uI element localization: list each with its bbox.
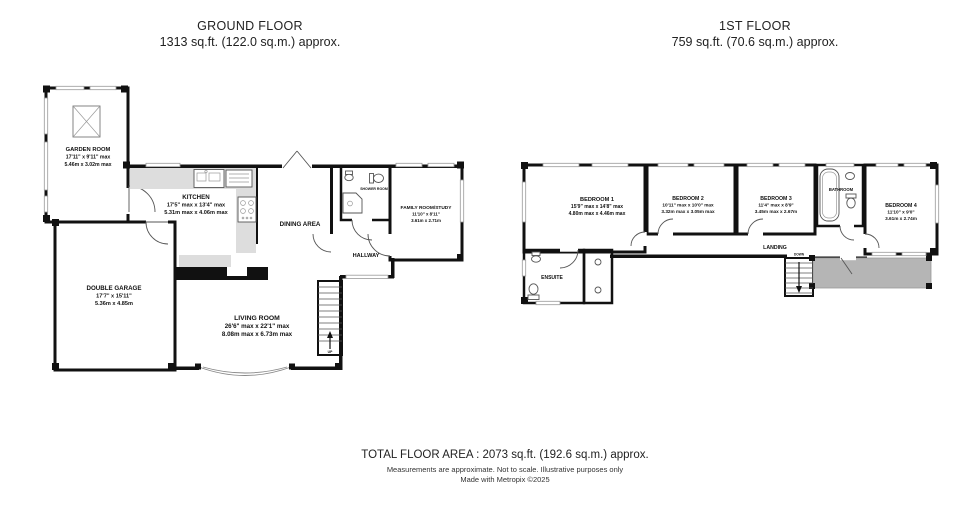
kitchen-label: KITCHEN	[182, 194, 210, 201]
first-floor-title: 1ST FLOOR 759 sq.ft. (70.6 sq.m.) approx…	[605, 18, 905, 51]
garden-room-label: GARDEN ROOM	[66, 147, 111, 153]
svg-text:11'4" max x 8'9": 11'4" max x 8'9"	[758, 203, 793, 208]
landing-label: LANDING	[763, 245, 787, 251]
stairs-down-label: DOWN	[794, 253, 805, 257]
toilet-icon	[370, 174, 374, 184]
footer: TOTAL FLOOR AREA : 2073 sq.ft. (192.6 sq…	[295, 449, 715, 485]
svg-text:8.08m max x 6.73m max: 8.08m max x 6.73m max	[222, 331, 293, 338]
shower-head-icon	[595, 259, 601, 265]
svg-text:3.61m x 2.74m: 3.61m x 2.74m	[885, 216, 917, 221]
svg-text:17'7" x 15'11": 17'7" x 15'11"	[96, 294, 132, 300]
svg-text:17'5" max x 13'4" max: 17'5" max x 13'4" max	[167, 203, 226, 209]
svg-text:3.45m max x 2.67m: 3.45m max x 2.67m	[755, 209, 797, 214]
stairs-down	[785, 262, 813, 293]
total-floor-area: TOTAL FLOOR AREA : 2073 sq.ft. (192.6 sq…	[295, 449, 715, 461]
svg-text:4.80m max x 4.46m max: 4.80m max x 4.46m max	[569, 211, 626, 217]
bedroom3-label: BEDROOM 3	[760, 196, 792, 202]
hob-icon	[238, 197, 256, 222]
svg-text:5.31m max x 4.06m max: 5.31m max x 4.06m max	[164, 210, 228, 216]
ground-floor-name: GROUND FLOOR	[100, 18, 400, 34]
disclaimer-text: Measurements are approximate. Not to sca…	[295, 465, 715, 475]
svg-text:15'9" max x 14'8" max: 15'9" max x 14'8" max	[571, 204, 623, 210]
stairs-up-label: UP	[328, 350, 333, 354]
svg-text:3.61m x 2.71m: 3.61m x 2.71m	[411, 218, 441, 223]
sink-icon	[532, 252, 540, 256]
sink-icon	[846, 173, 855, 180]
credit-text: Made with Metropix ©2025	[295, 475, 715, 485]
toilet-icon	[528, 295, 539, 300]
family-room-label: FAMILY ROOM/STUDY	[401, 205, 453, 211]
bedroom1-label: BEDROOM 1	[580, 197, 614, 203]
ground-floor-area: 1313 sq.ft. (122.0 sq.m.) approx.	[100, 34, 400, 50]
kitchen-sink-icon	[194, 170, 252, 188]
ground-floor-title: GROUND FLOOR 1313 sq.ft. (122.0 sq.m.) a…	[100, 18, 400, 51]
toilet-icon	[846, 194, 856, 198]
shower-room-label: SHOWER ROOM	[360, 187, 388, 191]
svg-text:10'11" max x 10'0" max: 10'11" max x 10'0" max	[662, 203, 714, 208]
ground-floor-plan: GARDEN ROOM 17'11" x 9'11" max 5.46m x 3…	[40, 80, 470, 395]
skylight-icon	[73, 106, 100, 137]
hallway-label: HALLWAY	[353, 253, 380, 259]
double-garage-label: DOUBLE GARAGE	[86, 285, 141, 292]
ensuite-label: ENSUITE	[541, 275, 563, 281]
first-floor-plan: BEDROOM 1 15'9" max x 14'8" max 4.80m ma…	[515, 155, 940, 310]
dining-area-label: DINING AREA	[280, 221, 321, 228]
roof-area	[809, 255, 932, 289]
bathroom-label: BATHROOM	[829, 187, 854, 192]
svg-text:3.32m max x 3.05m max: 3.32m max x 3.05m max	[661, 209, 715, 214]
svg-text:11'10" x 9'0": 11'10" x 9'0"	[887, 210, 914, 215]
bedroom4-label: BEDROOM 4	[885, 203, 917, 209]
bedroom2-label: BEDROOM 2	[672, 196, 704, 202]
first-floor-area: 759 sq.ft. (70.6 sq.m.) approx.	[605, 34, 905, 50]
first-floor-name: 1ST FLOOR	[605, 18, 905, 34]
svg-text:5.46m x 3.02m max: 5.46m x 3.02m max	[64, 162, 111, 168]
floorplan-page: GROUND FLOOR 1313 sq.ft. (122.0 sq.m.) a…	[0, 0, 980, 515]
svg-text:17'11" x 9'11" max: 17'11" x 9'11" max	[66, 155, 111, 161]
living-room-label: LIVING ROOM	[234, 315, 280, 322]
svg-text:11'10" x 8'11": 11'10" x 8'11"	[412, 212, 440, 217]
svg-text:5.36m x 4.85m: 5.36m x 4.85m	[95, 301, 133, 307]
svg-text:26'6" max x 22'1" max: 26'6" max x 22'1" max	[225, 323, 290, 330]
